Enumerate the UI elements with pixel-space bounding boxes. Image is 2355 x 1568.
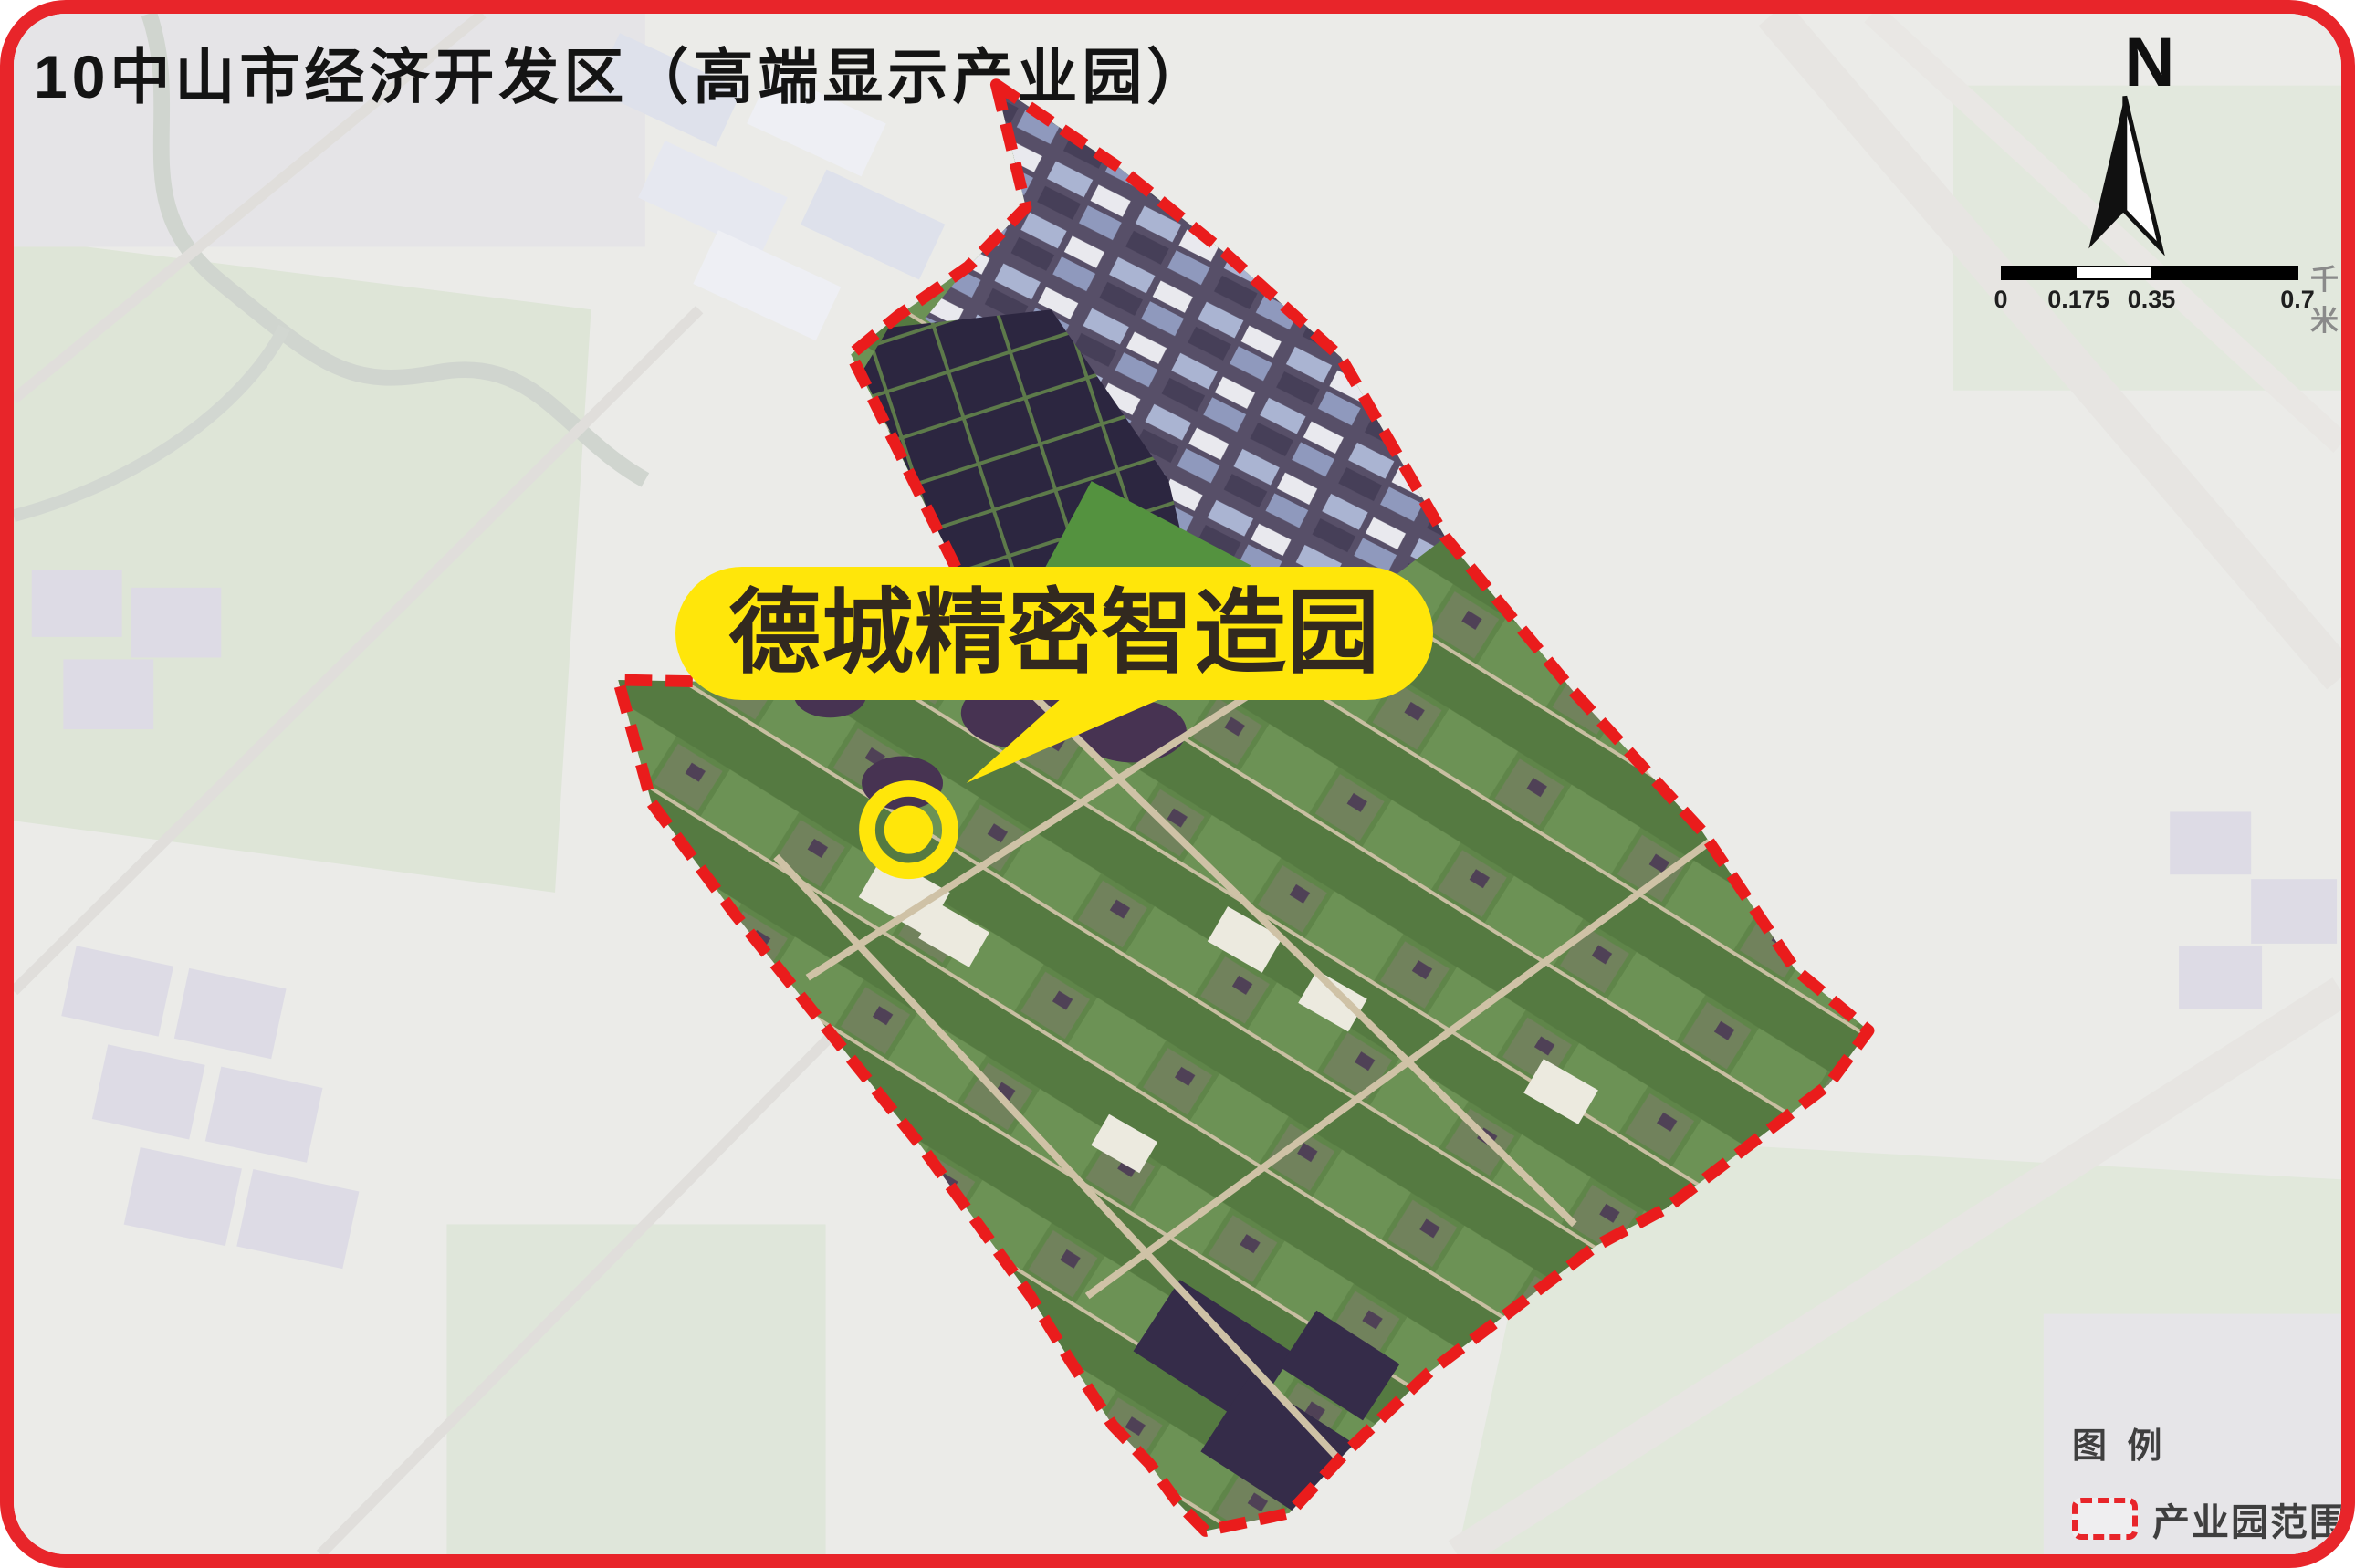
legend-item-label: 产业园范围 (2152, 1491, 2349, 1546)
satellite-map (14, 14, 2341, 1554)
scale-ticks: 0 0.175 0.35 0.7 (2001, 286, 2298, 317)
scale-tick: 0 (1994, 286, 2007, 314)
scale-unit: 千米 (2310, 256, 2341, 339)
legend-swatch-park-boundary (2072, 1498, 2138, 1540)
scale-tick: 0.175 (2047, 286, 2109, 314)
scale-bar-segment (2077, 267, 2151, 278)
map-frame: 10中山市经济开发区（高端显示产业园） 德城精密智造园 N 0 0.175 0.… (0, 0, 2355, 1568)
scale-tick: 0.35 (2128, 286, 2176, 314)
north-label: N (2125, 23, 2175, 102)
map-viewport: 10中山市经济开发区（高端显示产业园） 德城精密智造园 N 0 0.175 0.… (0, 0, 2355, 1568)
legend: 图 例 产业园范围 (2072, 1417, 2349, 1546)
callout-bubble: 德城精密智造园 (675, 567, 1433, 700)
legend-item: 产业园范围 (2072, 1491, 2349, 1546)
scale-bar (2001, 266, 2298, 280)
callout-label: 德城精密智造园 (728, 588, 1380, 680)
page-title: 10中山市经济开发区（高端显示产业园） (34, 28, 1211, 116)
legend-title: 图 例 (2072, 1417, 2349, 1468)
